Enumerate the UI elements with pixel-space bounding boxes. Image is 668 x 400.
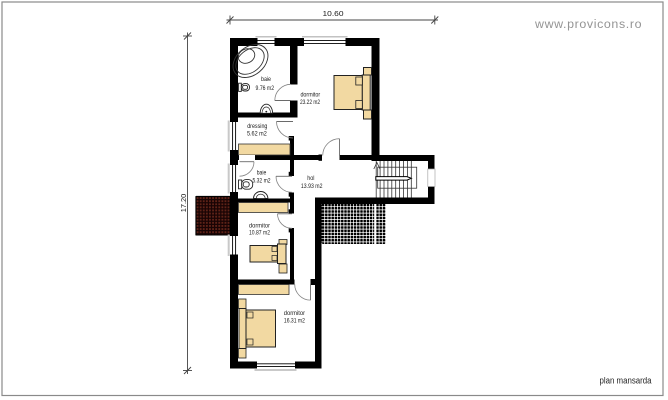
svg-text:5.62 m2: 5.62 m2	[247, 130, 267, 137]
svg-text:9.76 m2: 9.76 m2	[256, 85, 275, 92]
svg-text:baie: baie	[257, 170, 267, 177]
svg-text:5.32 m2: 5.32 m2	[253, 177, 271, 184]
svg-text:23.22 m2: 23.22 m2	[300, 99, 320, 106]
svg-text:10.60: 10.60	[323, 9, 344, 18]
svg-text:hol: hol	[307, 175, 314, 182]
svg-text:13.93 m2: 13.93 m2	[301, 183, 323, 190]
svg-text:dressing: dressing	[247, 123, 268, 130]
svg-text:dormitor: dormitor	[249, 222, 270, 229]
svg-text:10.87 m2: 10.87 m2	[249, 230, 270, 237]
svg-text:www.provicons.ro: www.provicons.ro	[534, 17, 642, 31]
svg-text:plan mansarda: plan mansarda	[600, 375, 652, 385]
svg-text:dormitor: dormitor	[284, 310, 305, 317]
svg-text:baie: baie	[261, 76, 271, 83]
svg-text:dormitor: dormitor	[300, 91, 320, 98]
svg-text:17.20: 17.20	[179, 194, 188, 213]
svg-text:16.31 m2: 16.31 m2	[284, 317, 305, 324]
